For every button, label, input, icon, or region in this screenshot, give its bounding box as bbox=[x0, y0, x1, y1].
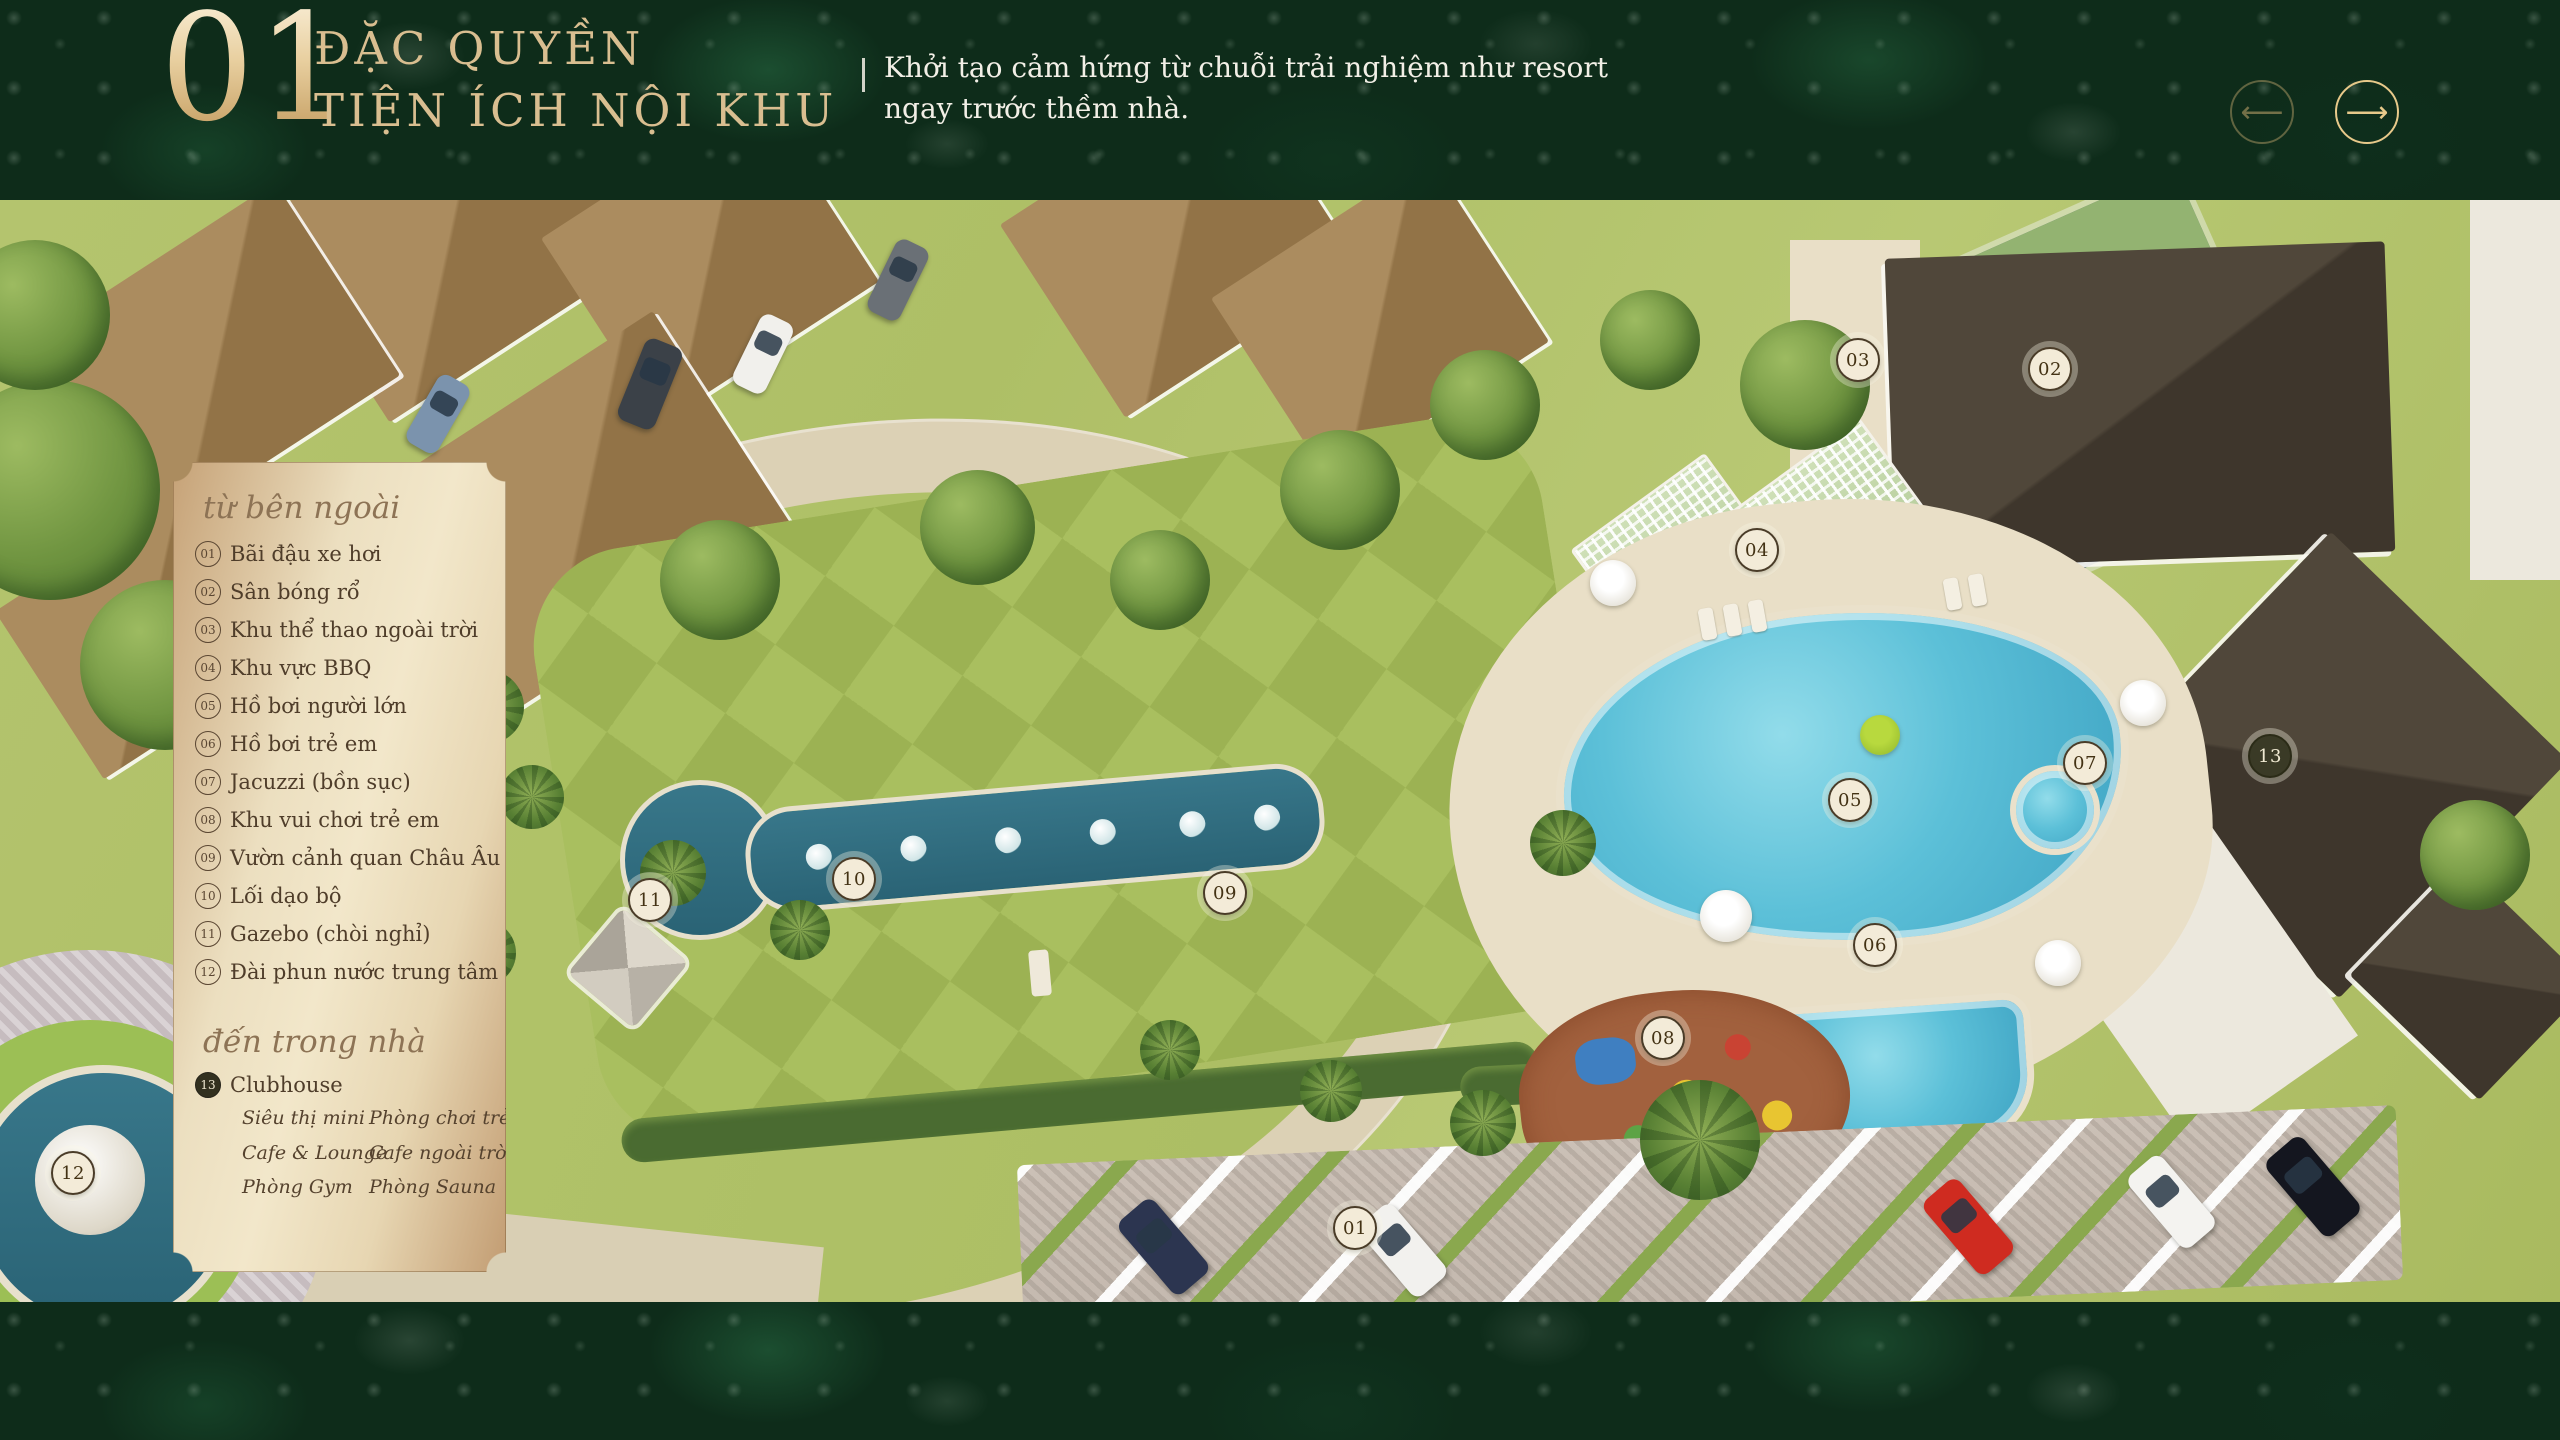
fountain-jet bbox=[994, 826, 1022, 854]
subtitle-line1: Khởi tạo cảm hứng từ chuỗi trải nghiệm n… bbox=[884, 48, 1608, 89]
clubhouse-feature: Cafe ngoài trời bbox=[369, 1142, 513, 1164]
legend-section-inside: đến trong nhà bbox=[203, 1024, 426, 1060]
map-marker-10-walkway: 10 bbox=[832, 857, 876, 901]
legend-item-number: 01 bbox=[195, 541, 221, 567]
legend-item-label: Jacuzzi (bồn sục) bbox=[230, 770, 411, 794]
legend-item: 03Khu thể thao ngoài trời bbox=[195, 617, 478, 643]
marker-label: 11 bbox=[638, 890, 662, 911]
map-marker-07-jacuzzi: 07 bbox=[2063, 741, 2107, 785]
page-title-line2: TIỆN ÍCH NỘI KHU bbox=[314, 88, 837, 133]
legend-item-number: 12 bbox=[195, 959, 221, 985]
palm-tree bbox=[500, 765, 564, 829]
palm-tree bbox=[1530, 810, 1596, 876]
map-marker-06-kids-pool: 06 bbox=[1853, 923, 1897, 967]
marker-label: 08 bbox=[1651, 1028, 1675, 1049]
tree bbox=[1280, 430, 1400, 550]
garden-statue bbox=[1028, 949, 1052, 997]
clubhouse-feature: Siêu thị mini bbox=[242, 1107, 365, 1129]
legend-item: 12Đài phun nước trung tâm bbox=[195, 959, 498, 985]
tree bbox=[1430, 350, 1540, 460]
fountain-jet bbox=[899, 835, 927, 863]
car-black bbox=[2262, 1133, 2363, 1240]
marker-label: 03 bbox=[1846, 350, 1870, 371]
legend-item-number: 13 bbox=[195, 1072, 221, 1098]
marker-label: 13 bbox=[2258, 746, 2282, 767]
legend-item-label: Khu thể thao ngoài trời bbox=[230, 618, 478, 642]
map-marker-04-bbq: 04 bbox=[1735, 528, 1779, 572]
legend-item: 07Jacuzzi (bồn sục) bbox=[195, 769, 411, 795]
legend-item-label: Hồ bơi trẻ em bbox=[230, 732, 377, 756]
map-marker-02-basketball: 02 bbox=[2028, 347, 2072, 391]
page: 01 ĐẶC QUYỀN TIỆN ÍCH NỘI KHU Khởi tạo c… bbox=[0, 0, 2560, 1440]
subtitle-divider bbox=[862, 58, 865, 92]
car-red bbox=[1920, 1175, 2017, 1278]
legend-item-label: Khu vui chơi trẻ em bbox=[230, 808, 439, 832]
palm-tree bbox=[770, 900, 830, 960]
tree bbox=[2420, 800, 2530, 910]
clubhouse-feature: Phòng Sauna bbox=[369, 1176, 496, 1198]
subtitle-line2: ngay trước thềm nhà. bbox=[884, 89, 1608, 130]
legend-item-label: Vườn cảnh quan Châu Âu bbox=[230, 846, 500, 870]
map-marker-03-outdoor-sport: 03 bbox=[1836, 338, 1880, 382]
legend-item-number: 09 bbox=[195, 845, 221, 871]
marker-label: 07 bbox=[2073, 753, 2097, 774]
arrow-right-icon: ⟶ bbox=[2345, 95, 2388, 130]
legend-item-label: Sân bóng rổ bbox=[230, 580, 360, 604]
marker-label: 10 bbox=[842, 869, 866, 890]
legend-item: 05Hồ bơi người lớn bbox=[195, 693, 407, 719]
marker-label: 04 bbox=[1745, 540, 1769, 561]
neighbor-building bbox=[2470, 200, 2560, 580]
next-slide-button[interactable]: ⟶ bbox=[2335, 80, 2399, 144]
map-marker-01-parking: 01 bbox=[1333, 1206, 1377, 1250]
legend-item-label: Lối dạo bộ bbox=[230, 884, 342, 908]
page-title: ĐẶC QUYỀN TIỆN ÍCH NỘI KHU bbox=[314, 26, 837, 133]
map-marker-09-garden: 09 bbox=[1203, 871, 1247, 915]
map-marker-08-playground: 08 bbox=[1641, 1016, 1685, 1060]
palm-tree bbox=[1300, 1060, 1362, 1122]
map-marker-11-gazebo: 11 bbox=[628, 878, 672, 922]
palm-tree bbox=[1640, 1080, 1760, 1200]
clubhouse-feature: Cafe & Lounge bbox=[242, 1142, 387, 1164]
legend-item: 04Khu vực BBQ bbox=[195, 655, 371, 681]
legend-item-label: Bãi đậu xe hơi bbox=[230, 542, 381, 566]
legend-item-number: 06 bbox=[195, 731, 221, 757]
legend-item-label: Đài phun nước trung tâm bbox=[230, 960, 498, 984]
fountain-jet bbox=[805, 843, 833, 871]
legend-item: 01Bãi đậu xe hơi bbox=[195, 541, 381, 567]
marker-label: 02 bbox=[2038, 359, 2062, 380]
header-band: 01 ĐẶC QUYỀN TIỆN ÍCH NỘI KHU Khởi tạo c… bbox=[0, 0, 2560, 200]
legend-section-outside: từ bên ngoài bbox=[203, 490, 400, 526]
legend-item-number: 11 bbox=[195, 921, 221, 947]
page-subtitle: Khởi tạo cảm hứng từ chuỗi trải nghiệm n… bbox=[884, 48, 1608, 129]
legend-item-number: 08 bbox=[195, 807, 221, 833]
marker-label: 05 bbox=[1838, 790, 1862, 811]
palm-tree bbox=[1140, 1020, 1200, 1080]
tree bbox=[1110, 530, 1210, 630]
legend-item: 06Hồ bơi trẻ em bbox=[195, 731, 377, 757]
marker-label: 01 bbox=[1343, 1218, 1367, 1239]
legend-item: 11Gazebo (chòi nghỉ) bbox=[195, 921, 430, 947]
legend-item-number: 04 bbox=[195, 655, 221, 681]
marker-label: 09 bbox=[1213, 883, 1237, 904]
tree bbox=[920, 470, 1035, 585]
playground-equipment bbox=[1723, 1033, 1752, 1062]
marker-label: 06 bbox=[1863, 935, 1887, 956]
legend-item-label: Clubhouse bbox=[230, 1073, 343, 1097]
legend-item: 09Vườn cảnh quan Châu Âu bbox=[195, 845, 500, 871]
map-marker-12-fountain: 12 bbox=[51, 1151, 95, 1195]
legend-item-number: 05 bbox=[195, 693, 221, 719]
legend-item-label: Gazebo (chòi nghỉ) bbox=[230, 922, 430, 946]
car-navy bbox=[1115, 1195, 1212, 1298]
fountain-jet bbox=[1253, 804, 1281, 832]
playground-equipment bbox=[1573, 1035, 1637, 1087]
legend-item-clubhouse: 13 Clubhouse bbox=[195, 1072, 343, 1098]
clubhouse-feature: Phòng Gym bbox=[242, 1176, 353, 1198]
legend-item-number: 02 bbox=[195, 579, 221, 605]
marker-label: 12 bbox=[61, 1163, 85, 1184]
legend-item-label: Khu vực BBQ bbox=[230, 656, 371, 680]
page-title-line1: ĐẶC QUYỀN bbox=[314, 26, 837, 71]
umbrella bbox=[2035, 940, 2081, 986]
legend-item-label: Hồ bơi người lớn bbox=[230, 694, 407, 718]
fountain-jet bbox=[1089, 818, 1117, 846]
car-white bbox=[2124, 1152, 2219, 1252]
footer-band bbox=[0, 1302, 2560, 1440]
tree bbox=[1600, 290, 1700, 390]
fountain-jet bbox=[1178, 810, 1206, 838]
map-marker-13-clubhouse: 13 bbox=[2248, 734, 2292, 778]
arrow-left-icon: ⟵ bbox=[2240, 95, 2283, 130]
umbrella bbox=[2120, 680, 2166, 726]
umbrella-green bbox=[1860, 715, 1900, 755]
palm-tree bbox=[1450, 1090, 1516, 1156]
map-marker-05-adult-pool: 05 bbox=[1828, 778, 1872, 822]
umbrella bbox=[1590, 560, 1636, 606]
umbrella bbox=[1700, 890, 1752, 942]
legend-panel: từ bên ngoài 01Bãi đậu xe hơi 02Sân bóng… bbox=[173, 462, 506, 1272]
previous-slide-button[interactable]: ⟵ bbox=[2230, 80, 2294, 144]
legend-item-number: 07 bbox=[195, 769, 221, 795]
legend-item-number: 03 bbox=[195, 617, 221, 643]
legend-item: 02Sân bóng rổ bbox=[195, 579, 360, 605]
tree bbox=[660, 520, 780, 640]
playground-equipment bbox=[1761, 1099, 1794, 1132]
legend-item: 10Lối dạo bộ bbox=[195, 883, 342, 909]
legend-item-number: 10 bbox=[195, 883, 221, 909]
legend-item: 08Khu vui chơi trẻ em bbox=[195, 807, 439, 833]
